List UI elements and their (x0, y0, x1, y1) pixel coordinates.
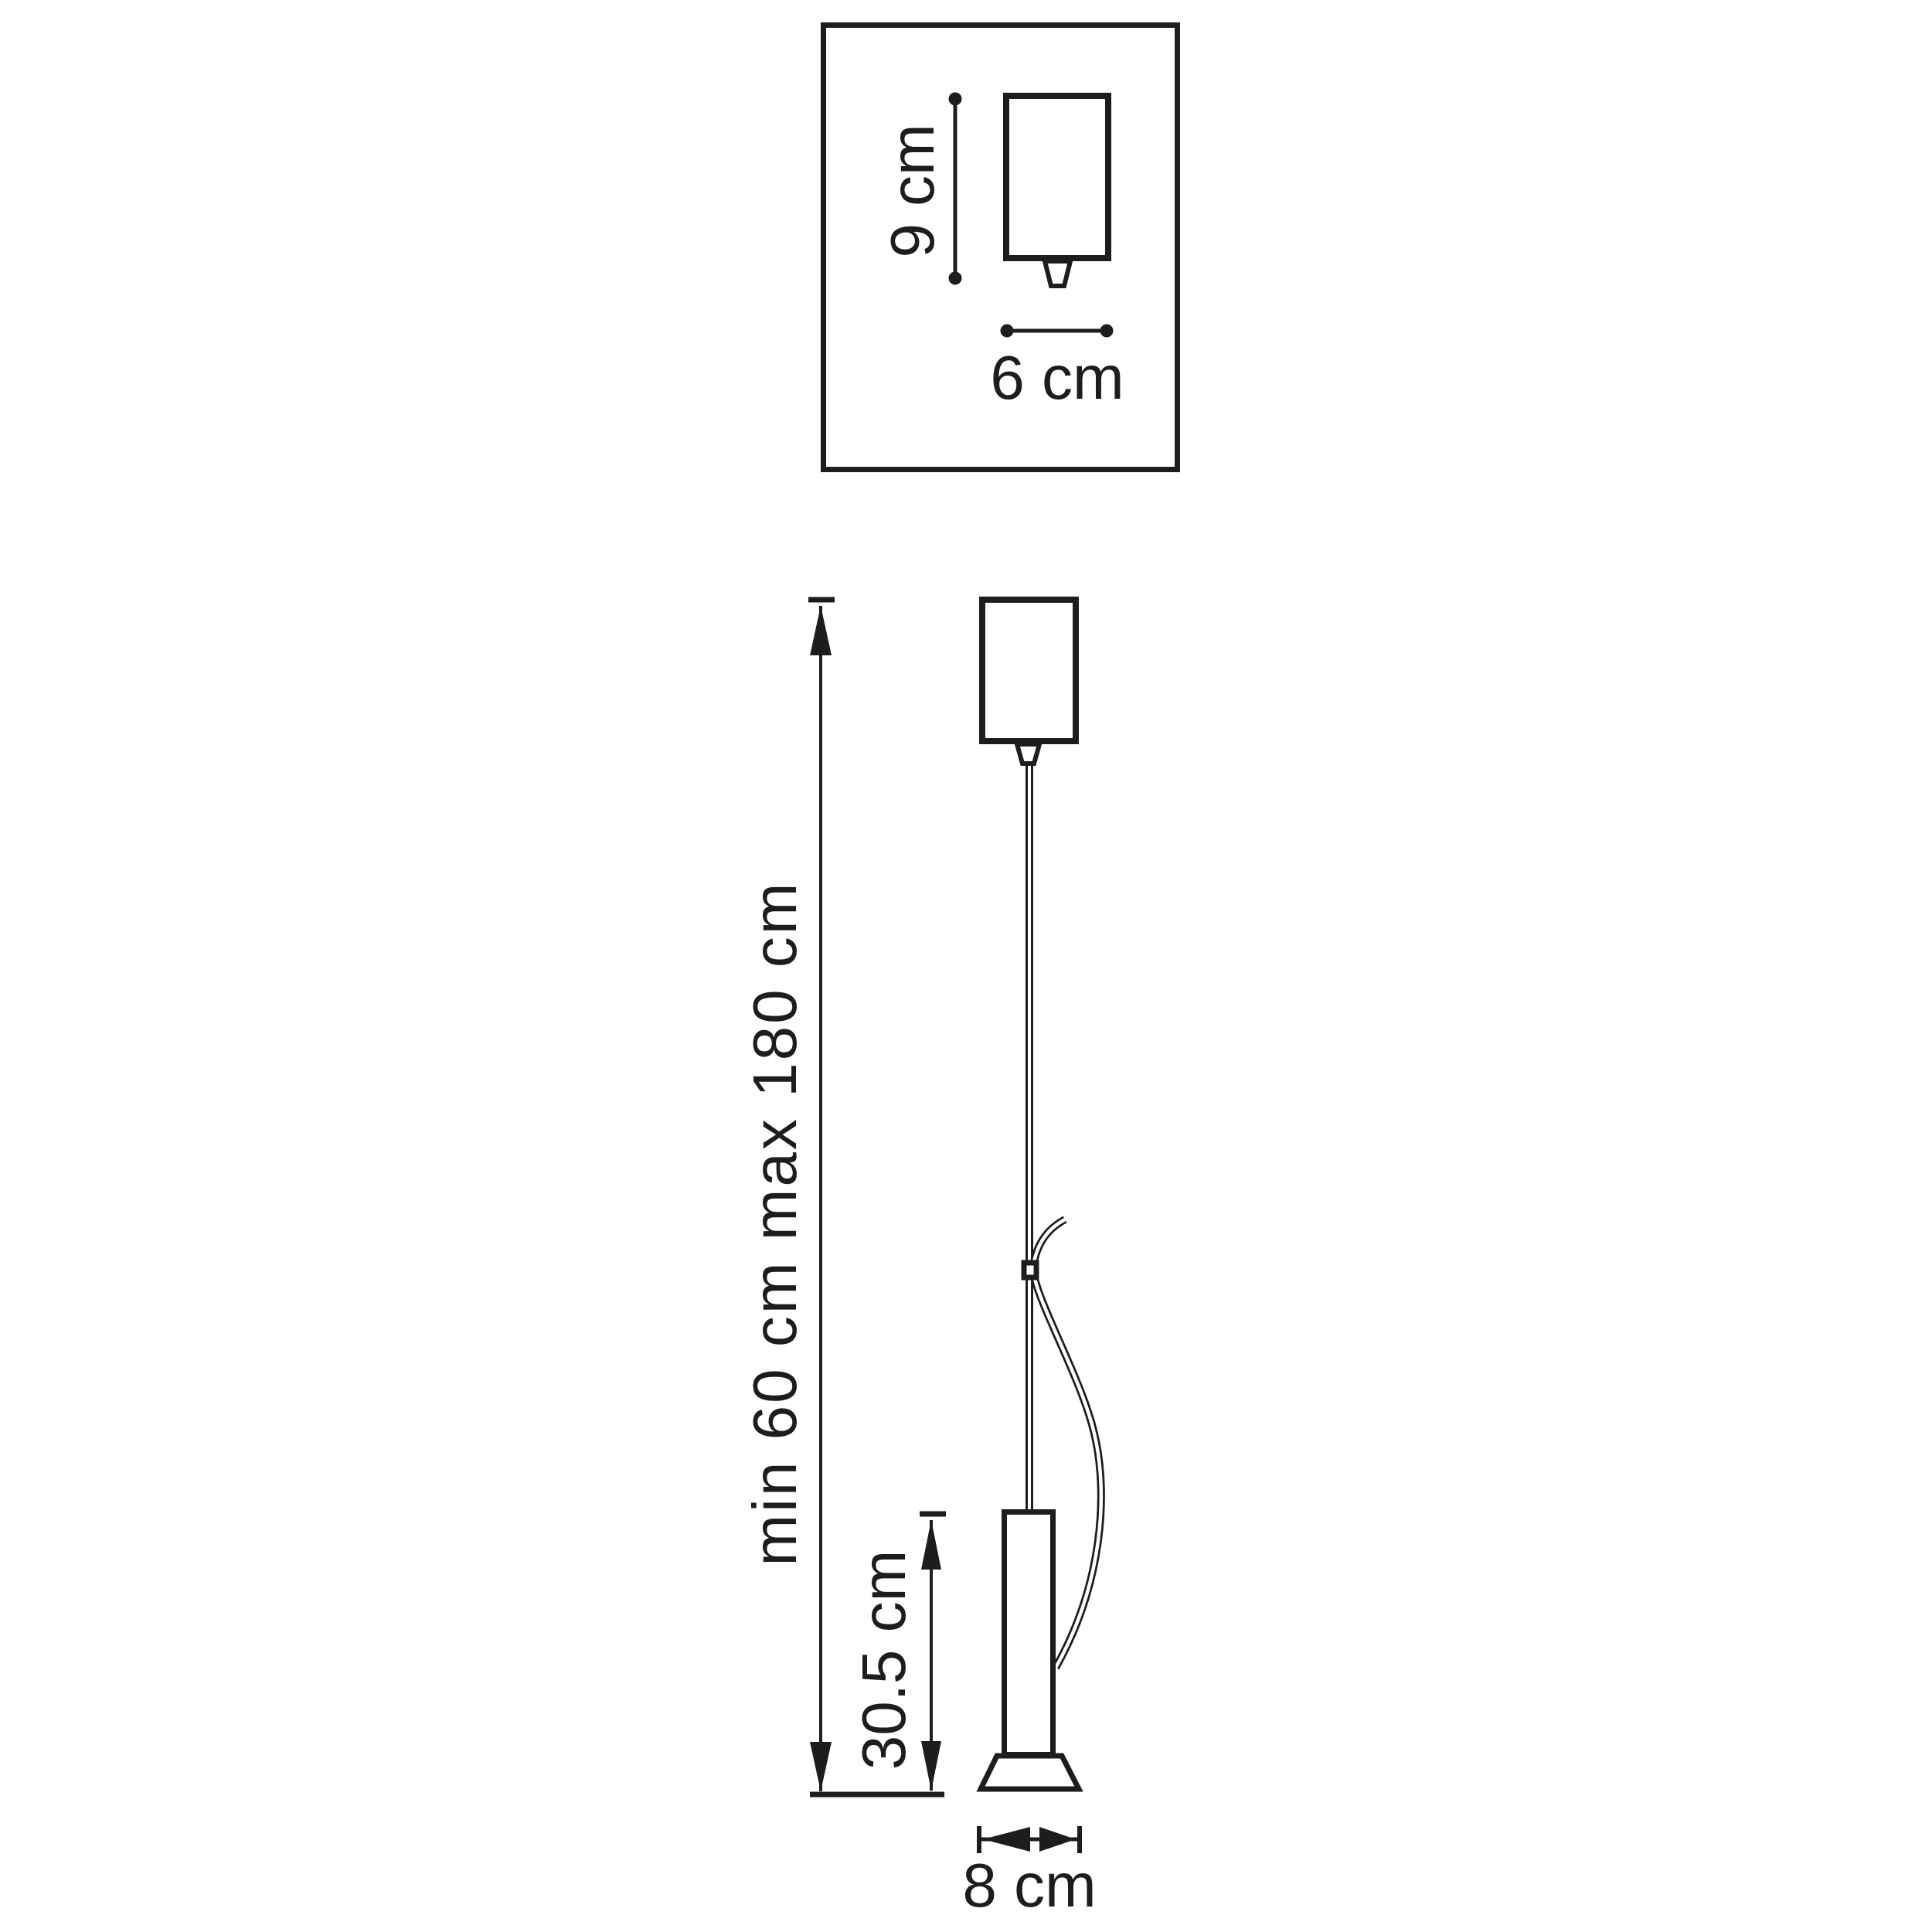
dimension-drawing-canvas: 9 cm 6 cm min 60 cm max 180 cm 30.5 cm 8… (0, 0, 1932, 1932)
lamp-body-cylinder (1005, 1512, 1053, 1755)
canopy-top-stem (1045, 261, 1070, 286)
lamp-base-cone (981, 1756, 1079, 1789)
base-dim-arrow-left (983, 1827, 1030, 1852)
dim-9cm-dot-bottom (949, 272, 962, 285)
body-dim-arrow-down (921, 1741, 941, 1791)
dim-9cm-dot-top (949, 93, 962, 106)
dim-6cm-dot-right (1100, 325, 1114, 338)
body-height-label: 30.5 cm (853, 1550, 915, 1770)
base-width-label: 8 cm (962, 1855, 1096, 1917)
cord-adjuster (1024, 1263, 1036, 1277)
suspension-dim-arrow-down (810, 1742, 832, 1791)
body-dim-arrow-up (921, 1520, 941, 1570)
canopy-width-label: 6 cm (990, 347, 1124, 409)
dim-6cm-dot-left (1001, 325, 1014, 338)
canopy-front-view (982, 600, 1076, 741)
base-dim-arrow-right (1039, 1827, 1076, 1852)
suspension-range-label: min 60 cm max 180 cm (744, 881, 806, 1566)
canopy-top-view (1006, 96, 1108, 258)
canopy-height-label: 9 cm (882, 124, 944, 257)
canopy-front-stem (1017, 744, 1039, 764)
lamp-line-art (0, 0, 1932, 1932)
suspension-dim-arrow-up (810, 606, 832, 655)
